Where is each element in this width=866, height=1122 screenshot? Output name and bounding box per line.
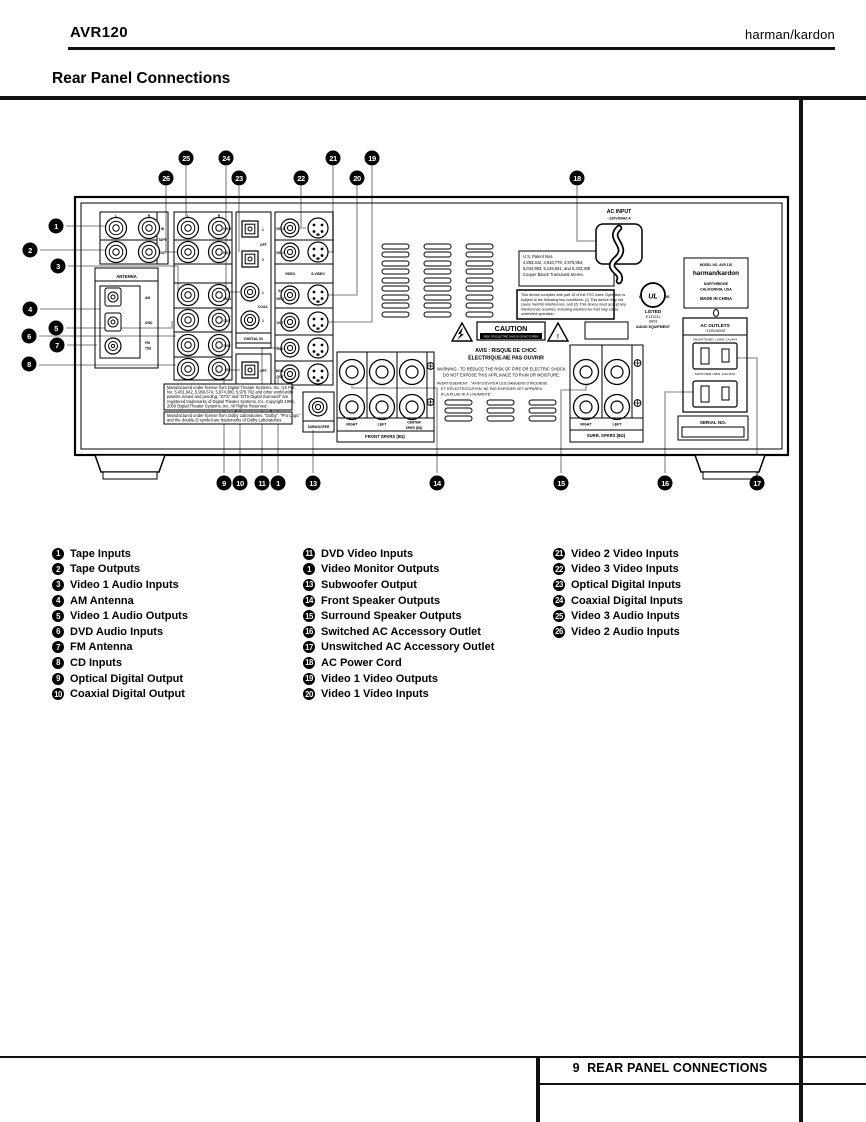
vid1-audio-label: VID 1 <box>223 297 231 301</box>
optical-in-2 <box>242 251 258 267</box>
avert-line: AVERTISSEMENT : "AFIN D'ÉVITER LES DANGE… <box>437 381 548 386</box>
svg-text:8: 8 <box>27 360 31 369</box>
legend-label: Tape Inputs <box>70 548 131 560</box>
legend-badge: 15 <box>303 610 315 622</box>
unswitched-outlet <box>693 343 737 369</box>
dvd-audio-label: DVD <box>224 344 232 348</box>
legend-label: DVD Video Inputs <box>321 548 413 560</box>
ac-outlets-section: AC OUTLETS ~120V/60HZ UNSWITCHED / 100W,… <box>683 318 747 412</box>
svg-text:1: 1 <box>54 222 58 231</box>
callout-3: 3 <box>51 259 66 274</box>
front-left-label: LEFT <box>378 423 388 427</box>
legend-badge: 1 <box>303 563 315 575</box>
legend-label: AC Power Cord <box>321 657 402 669</box>
callout-14: 14 <box>430 476 445 491</box>
svg-text:20: 20 <box>353 174 361 183</box>
legend-label: AM Antenna <box>70 595 134 607</box>
avert-line: À LA PLUIE NI À L'HUMIDITÉ". <box>441 392 493 397</box>
footer-page-number: 9 <box>573 1061 580 1075</box>
svg-text:18: 18 <box>573 174 581 183</box>
rca-jack <box>139 242 160 263</box>
callout-18: 18 <box>570 171 585 186</box>
switched-label: SWITCHED / 50W, 1/2A MAX <box>695 372 736 376</box>
ul-code: 9A03 <box>649 320 658 324</box>
legend-badge: 4 <box>52 595 64 607</box>
legend-label: Coaxial Digital Inputs <box>571 595 683 607</box>
callout-7: 7 <box>50 338 65 353</box>
legend-badge: 5 <box>52 610 64 622</box>
legend-label: FM Antenna <box>70 641 133 653</box>
avis-line1: AVIS : RISQUE DE CHOC <box>475 348 537 354</box>
footer-rule-bottom <box>540 1083 866 1085</box>
tape-out-label: OUT <box>159 251 166 255</box>
callout-20: 20 <box>350 171 365 186</box>
opt1-num: 1 <box>262 228 264 232</box>
legend-badge: 10 <box>52 688 64 700</box>
digital-in-section: 1 OPT 2 1 COAX 2 DIGITAL IN <box>236 212 271 348</box>
caution-title: CAUTION <box>495 324 528 333</box>
legend-label: Tape Outputs <box>70 563 140 575</box>
legend-column-2: 11DVD Video Inputs1Video Monitor Outputs… <box>303 546 548 702</box>
svg-text:2: 2 <box>28 246 32 255</box>
avis-line2: ÉLECTRIQUE-NE PAS OUVRIR <box>468 354 544 362</box>
surr-spkrs-title: SURR. SPKRS (8Ω) <box>587 433 626 438</box>
legend-label: Video 1 Audio Inputs <box>70 579 179 591</box>
svg-text:17: 17 <box>753 479 761 488</box>
unswitched-label: UNSWITCHED / 100W, 1A MAX <box>693 338 737 342</box>
coax-in-1 <box>241 283 259 301</box>
callout-8: 8 <box>22 357 37 372</box>
subwoofer-jack <box>309 398 327 416</box>
legend-badge: 20 <box>303 688 315 700</box>
legend-badge: 7 <box>52 641 64 653</box>
legend-label: DVD Audio Inputs <box>70 626 163 638</box>
ac-input-rating: ~120V/60HZ A <box>607 217 631 221</box>
manual-page: AVR120 harman/kardon Rear Panel Connecti… <box>0 0 866 1122</box>
warning-line: WARNING : TO REDUCE THE RISK OF FIRE OR … <box>437 367 566 372</box>
legend-item: 9Optical Digital Output <box>52 671 297 687</box>
legend-column-1: 1Tape Inputs2Tape Outputs3Video 1 Audio … <box>52 546 297 702</box>
lightning-triangle-icon <box>452 323 472 341</box>
monitor-out-label2: OUT <box>277 375 284 379</box>
surr-right-label: RIGHT <box>580 423 592 427</box>
callout-4: 4 <box>23 302 38 317</box>
audio-inputs-section: L R VID 3 VID 2 IN VID 1 OUT DVD CD <box>174 212 232 380</box>
callout-15: 15 <box>554 476 569 491</box>
fm-ohm-label: 75Ω <box>145 347 152 351</box>
svg-text:24: 24 <box>222 154 231 163</box>
legend-item: 21Video 2 Video Inputs <box>553 546 798 562</box>
legend-item: 23Optical Digital Inputs <box>553 577 798 593</box>
ul-logo: UL <box>648 292 658 301</box>
legend-badge: 13 <box>303 579 315 591</box>
panel-screw <box>634 400 641 407</box>
vid2-video-label: VID 2 <box>276 251 284 255</box>
monitor-out-label: MON. <box>276 369 285 373</box>
footer-title: REAR PANEL CONNECTIONS <box>587 1061 767 1075</box>
legend-label: Surround Speaker Outputs <box>321 610 462 622</box>
legend-item: 19Video 1 Video Outputs <box>303 671 548 687</box>
svg-text:22: 22 <box>297 174 305 183</box>
callout-19: 19 <box>365 151 380 166</box>
footer: 9 REAR PANEL CONNECTIONS <box>540 1061 800 1075</box>
vid2-audio-label: VID 2 <box>223 251 231 255</box>
legend-item: 6DVD Audio Inputs <box>52 624 297 640</box>
legend-item: 10Coaxial Digital Output <box>52 686 297 702</box>
fcc-line: This device complies with part 15 of the… <box>521 293 625 297</box>
legend-badge: 24 <box>553 595 565 607</box>
footer-rule-top <box>0 1056 866 1058</box>
ul-audio-equipment: AUDIO EQUIPMENT <box>636 325 671 329</box>
ul-listing-mark: c UL us LISTED E131231 9A03 AUDIO EQUIPM… <box>636 283 671 329</box>
surr-left-label: LEFT <box>613 423 623 427</box>
coax2-num: 2 <box>262 319 264 323</box>
legend-item: 22Video 3 Video Inputs <box>553 562 798 578</box>
avert-line: ET D'ÉLECTROCUTION, NE PAS EXPOSER CET A… <box>441 386 543 391</box>
legend-label: Subwoofer Output <box>321 579 417 591</box>
surround-speaker-terminals: RIGHT LEFT SURR. SPKRS (8Ω) <box>570 345 643 442</box>
coax1-num: 1 <box>262 291 264 295</box>
legend-badge: 16 <box>303 626 315 638</box>
legend-item: 1Video Monitor Outputs <box>303 562 548 578</box>
callout-22: 22 <box>294 171 309 186</box>
center-label2: SPKR (8Ω) <box>406 426 423 430</box>
tape-section: L R IN TAPE OUT <box>100 212 168 264</box>
subwoofer-label: SUBWOOFER <box>308 425 330 429</box>
legend-item: 14Front Speaker Outputs <box>303 593 548 609</box>
audio-l-label: L <box>187 214 189 218</box>
fm-connector <box>105 338 121 354</box>
fcc-line: subject to the following two conditions:… <box>521 298 623 302</box>
mounting-hole <box>714 310 719 317</box>
legend-label: Video Monitor Outputs <box>321 563 439 575</box>
svg-text:10: 10 <box>236 479 244 488</box>
legend-label: Video 3 Audio Inputs <box>571 610 680 622</box>
vid1-video-label: VID 1 <box>276 297 284 301</box>
legend-item: 2Tape Outputs <box>52 562 297 578</box>
optical-in-1 <box>242 221 258 237</box>
center-label: CENTER <box>407 421 421 425</box>
callout-5: 5 <box>49 321 64 336</box>
panel-screw <box>427 399 434 406</box>
legend-item: 25Video 3 Audio Inputs <box>553 608 798 624</box>
svg-text:6: 6 <box>27 332 31 341</box>
blank-plate <box>585 322 628 339</box>
rca-jack <box>106 218 127 239</box>
svg-text:26: 26 <box>162 174 170 183</box>
opt2-num: 2 <box>262 258 264 262</box>
patent-line: 4,893,342, 4,910,779, 4,975,954, <box>523 260 583 265</box>
subwoofer-section: SUBWOOFER <box>303 392 334 432</box>
panel-screw <box>634 360 641 367</box>
legend-column-3: 21Video 2 Video Inputs22Video 3 Video In… <box>553 546 798 640</box>
legend-item: 3Video 1 Audio Inputs <box>52 577 297 593</box>
callout-13: 13 <box>306 476 321 491</box>
am-terminal <box>105 288 121 306</box>
fcc-line: cause harmful interference, and (2) This… <box>521 303 626 307</box>
legend-badge: 19 <box>303 673 315 685</box>
ul-file: E131231 <box>646 315 661 319</box>
ac-outlets-title: AC OUTLETS <box>700 323 729 328</box>
legend-item: 13Subwoofer Output <box>303 577 548 593</box>
legend-label: Video 2 Audio Inputs <box>571 626 680 638</box>
vid1-video-out-label: OUT <box>277 321 284 325</box>
am-label: AM <box>145 296 150 300</box>
video-section: VID 3 VID 2 VIDEO S-VIDEO IN VID 1 OUT D… <box>275 212 333 385</box>
serial-number-box: SERIAL NO. <box>678 416 748 440</box>
legend-item: 7FM Antenna <box>52 640 297 656</box>
fm-label: FM <box>145 341 150 345</box>
svg-text:9: 9 <box>222 479 226 488</box>
plate-made-in: MADE IN CHINA <box>700 296 732 301</box>
callout-6: 6 <box>22 329 37 344</box>
opt-out-label: OPT <box>260 369 267 373</box>
panel-screw <box>427 363 434 370</box>
callout-11: 11 <box>255 476 270 491</box>
callout-9: 9 <box>217 476 232 491</box>
caution-block: CAUTION RISK OF ELECTRIC SHOCK DO NOT OP… <box>437 322 568 397</box>
callout-24: 24 <box>219 151 234 166</box>
serial-label: SERIAL NO. <box>700 420 726 425</box>
legend-item: 11DVD Video Inputs <box>303 546 548 562</box>
plate-city: NORTHRIDGE <box>704 282 729 286</box>
ul-listed: LISTED <box>645 309 662 314</box>
front-speaker-terminals: RIGHT LEFT CENTER SPKR (8Ω) FRONT SPKRS … <box>337 352 434 442</box>
gnd-terminal <box>105 313 121 331</box>
vid3-audio-label: VID 3 <box>223 227 231 231</box>
dolby-line: and the double-D symbol are trademarks o… <box>167 418 282 423</box>
legend-item: 4AM Antenna <box>52 593 297 609</box>
gnd-label: GND <box>145 321 153 325</box>
legend-item: 17Unswitched AC Accessory Outlet <box>303 640 548 656</box>
svg-text:15: 15 <box>557 479 565 488</box>
plate-state: CALIFORNIA, USA <box>700 288 732 292</box>
plate-brand: harman/kardon <box>693 270 739 277</box>
dvd-video-label: DVD <box>277 347 285 351</box>
legend-label: Front Speaker Outputs <box>321 595 440 607</box>
dts-license-box: Manufactured under license from Digital … <box>164 384 295 410</box>
exclamation-mark: ! <box>557 334 559 341</box>
legend-item: 26Video 2 Audio Inputs <box>553 624 798 640</box>
legend-label: Video 1 Video Outputs <box>321 673 438 685</box>
callout-17: 17 <box>750 476 765 491</box>
fcc-line: interference received, including interfe… <box>521 307 619 311</box>
plate-model: MODEL NO. AVR 120 <box>700 263 733 267</box>
legend-badge: 18 <box>303 657 315 669</box>
vid1-audio-out-label: OUT <box>224 319 231 323</box>
callout-12: 1 <box>271 476 286 491</box>
legend-item: 8CD Inputs <box>52 655 297 671</box>
svg-text:14: 14 <box>433 479 442 488</box>
coax-label: COAX <box>258 305 268 309</box>
legend-badge: 14 <box>303 595 315 607</box>
legend-label: Coaxial Digital Output <box>70 688 185 700</box>
callout-2: 2 <box>23 243 38 258</box>
callout-21: 21 <box>326 151 341 166</box>
legend-label: Switched AC Accessory Outlet <box>321 626 481 638</box>
legend-label: Optical Digital Inputs <box>571 579 681 591</box>
callout-10: 10 <box>233 476 248 491</box>
model-label-plate: MODEL NO. AVR 120 harman/kardon NORTHRID… <box>684 258 748 317</box>
svg-text:21: 21 <box>329 154 337 163</box>
ac-input-label: AC INPUT <box>607 209 632 215</box>
digital-in-title: DIGITAL IN <box>244 337 263 341</box>
tape-in-label: IN <box>161 227 165 231</box>
video-header: VIDEO <box>285 272 296 276</box>
fcc-line: undesired operation. <box>521 312 555 316</box>
front-spkrs-title: FRONT SPKRS (8Ω) <box>365 434 405 439</box>
legend-label: Unswitched AC Accessory Outlet <box>321 641 494 653</box>
warning-line: DO NOT EXPOSE THIS APPLIANCE TO RAIN OR … <box>443 373 560 378</box>
svideo-header: S-VIDEO <box>311 272 325 276</box>
svg-text:1: 1 <box>276 479 280 488</box>
legend-badge: 26 <box>553 626 565 638</box>
legend-badge: 1 <box>52 548 64 560</box>
antenna-label: ANTENNA <box>116 274 136 279</box>
legend-item: 24Coaxial Digital Inputs <box>553 593 798 609</box>
legend-badge: 9 <box>52 673 64 685</box>
svg-text:3: 3 <box>56 262 60 271</box>
legend-label: Video 1 Video Inputs <box>321 688 429 700</box>
callout-1: 1 <box>49 219 64 234</box>
tape-l-label: L <box>115 214 117 218</box>
legend-badge: 11 <box>303 548 315 560</box>
legend-badge: 8 <box>52 657 64 669</box>
rca-jack <box>139 218 160 239</box>
legend-item: 16Switched AC Accessory Outlet <box>303 624 548 640</box>
svg-text:19: 19 <box>368 154 376 163</box>
legend-item: 15Surround Speaker Outputs <box>303 608 548 624</box>
legend-item: 5Video 1 Audio Outputs <box>52 608 297 624</box>
fcc-box: This device complies with part 15 of the… <box>517 290 626 319</box>
svg-text:25: 25 <box>182 154 190 163</box>
legend-badge: 17 <box>303 641 315 653</box>
legend-item: 1Tape Inputs <box>52 546 297 562</box>
opt-label: OPT <box>260 243 267 247</box>
svg-text:5: 5 <box>54 324 58 333</box>
dts-line: 2000 Digital Theater Systems, Inc. All R… <box>167 403 268 408</box>
legend-item: 18AC Power Cord <box>303 655 548 671</box>
legend-item: 20Video 1 Video Inputs <box>303 686 548 702</box>
legend-badge: 23 <box>553 579 565 591</box>
caution-subtitle: RISK OF ELECTRIC SHOCK DO NOT OPEN <box>484 334 539 338</box>
legend-badge: 22 <box>553 563 565 575</box>
callout-16: 16 <box>658 476 673 491</box>
patent-line: 5,034,983, 5,136,651, and 5,333,308 <box>523 266 591 271</box>
legend-label: CD Inputs <box>70 657 122 669</box>
legend-badge: 3 <box>52 579 64 591</box>
cd-audio-label: CD <box>225 368 230 372</box>
ac-outlets-voltage: ~120V/60HZ <box>705 329 727 333</box>
legend-badge: 2 <box>52 563 64 575</box>
patent-line: U.S. Patent Nos. <box>523 254 554 259</box>
coax-in-2 <box>241 311 259 329</box>
callout-25: 25 <box>179 151 194 166</box>
svg-text:16: 16 <box>661 479 669 488</box>
rear-panel-diagram: L R IN TAPE OUT L R VID 3 VID 2 IN VID 1… <box>0 0 810 540</box>
rca-jack <box>106 242 127 263</box>
legend-badge: 25 <box>553 610 565 622</box>
svg-text:23: 23 <box>235 174 243 183</box>
callout-23: 23 <box>232 171 247 186</box>
svg-text:7: 7 <box>55 341 59 350</box>
legend-label: Optical Digital Output <box>70 673 183 685</box>
patent-line: Cooper Bauck Transaural Stereo. <box>523 272 584 277</box>
ul-us: us <box>665 294 671 299</box>
svg-text:11: 11 <box>258 479 265 488</box>
dolby-license-box: Manufactured under license from Dolby La… <box>164 412 301 424</box>
svg-text:13: 13 <box>309 479 317 488</box>
callout-26: 26 <box>159 171 174 186</box>
legend-badge: 6 <box>52 626 64 638</box>
front-right-label: RIGHT <box>346 423 358 427</box>
legend-label: Video 1 Audio Outputs <box>70 610 188 622</box>
legend-label: Video 3 Video Inputs <box>571 563 679 575</box>
switched-outlet <box>693 381 737 407</box>
legend-badge: 21 <box>553 548 565 560</box>
legend-label: Video 2 Video Inputs <box>571 548 679 560</box>
antenna-section: ANTENNA AM GND FM 75Ω <box>95 268 158 368</box>
optical-out <box>242 362 258 378</box>
vid3-video-label: VID 3 <box>276 227 284 231</box>
tape-label: TAPE <box>158 238 167 242</box>
